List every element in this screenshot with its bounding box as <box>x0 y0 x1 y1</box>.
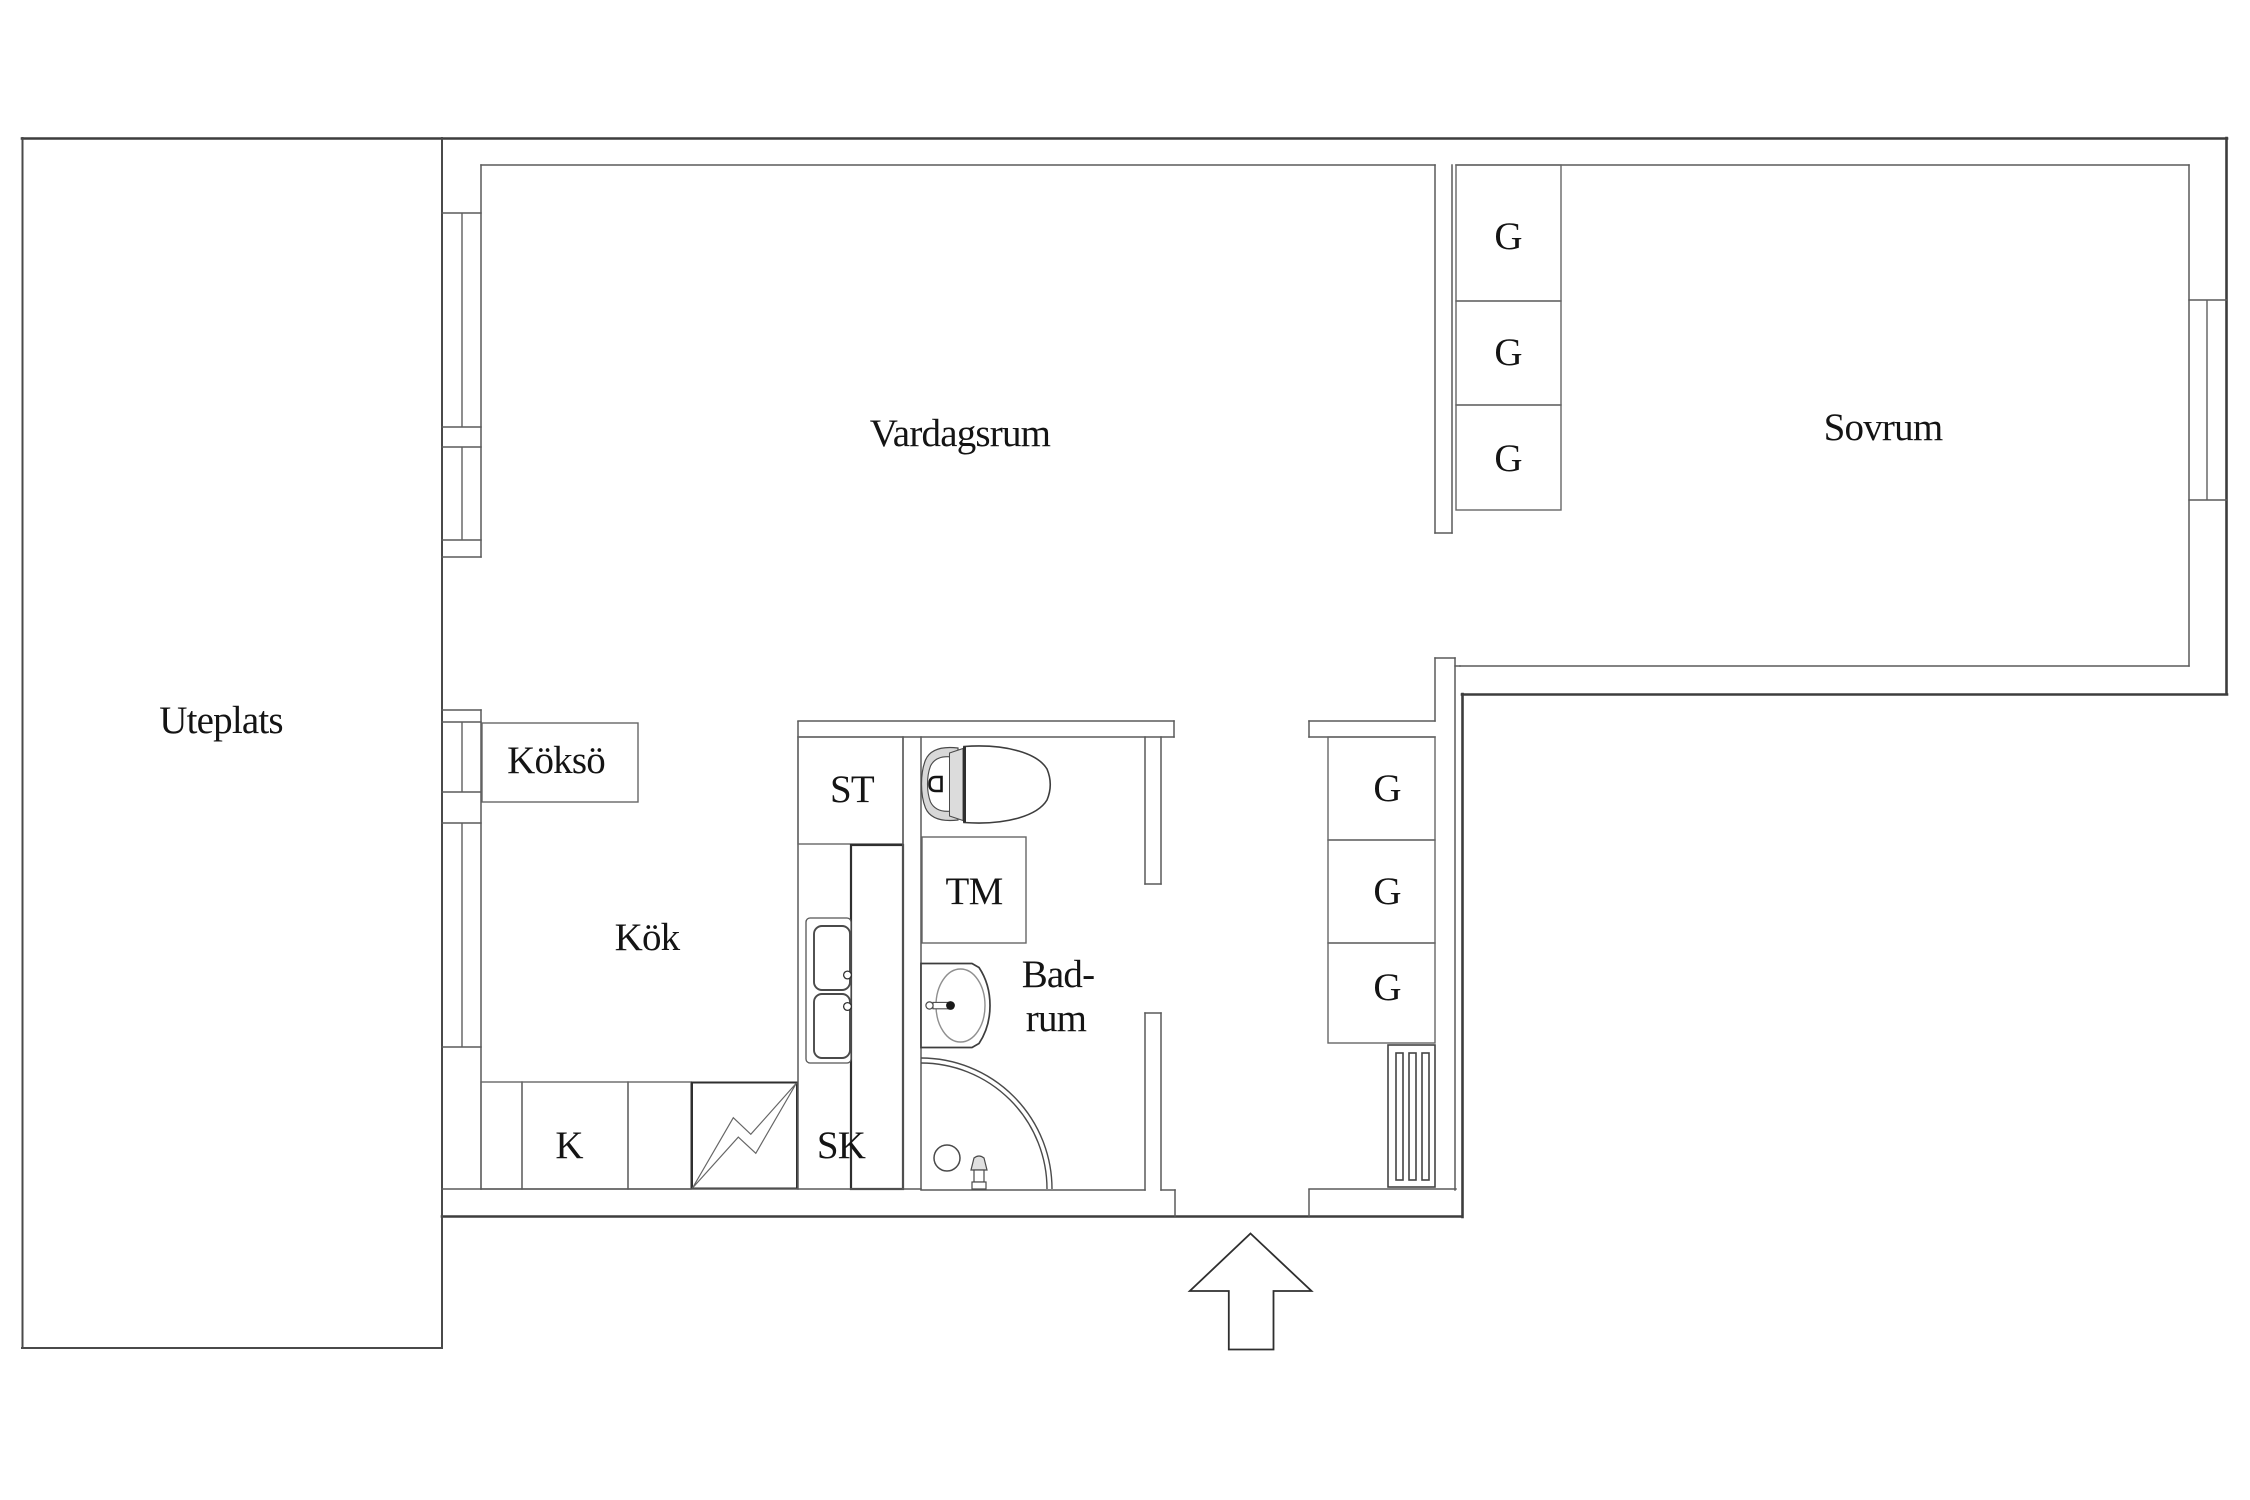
svg-text:G: G <box>1373 870 1400 913</box>
svg-text:Sovrum: Sovrum <box>1824 406 1943 449</box>
svg-text:G: G <box>1494 331 1521 374</box>
svg-text:Vardagsrum: Vardagsrum <box>870 412 1051 455</box>
svg-text:K: K <box>555 1124 583 1167</box>
svg-text:G: G <box>1494 215 1521 258</box>
svg-text:TM: TM <box>946 870 1003 913</box>
svg-text:SK: SK <box>817 1124 866 1167</box>
svg-text:G: G <box>1373 767 1400 810</box>
svg-text:Bad-: Bad- <box>1022 953 1095 996</box>
svg-text:ST: ST <box>830 768 875 811</box>
svg-text:G: G <box>1494 437 1521 480</box>
svg-text:G: G <box>1373 966 1400 1009</box>
svg-text:rum: rum <box>1026 997 1087 1040</box>
svg-text:Uteplats: Uteplats <box>159 699 283 742</box>
svg-text:Kök: Kök <box>615 916 681 959</box>
svg-text:Köksö: Köksö <box>507 739 605 782</box>
